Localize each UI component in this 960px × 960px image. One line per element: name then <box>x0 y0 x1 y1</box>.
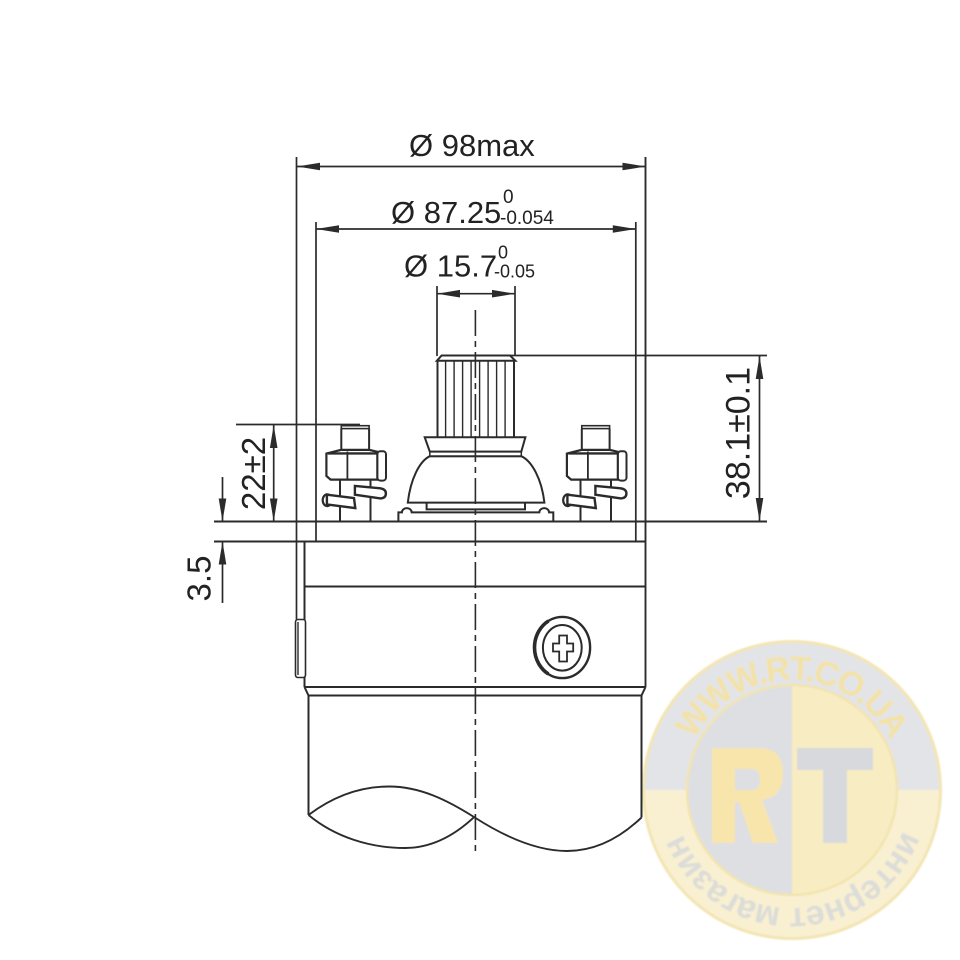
svg-text:Ø 15.7: Ø 15.7 <box>404 249 497 284</box>
svg-text:38.1±0.1: 38.1±0.1 <box>720 367 758 499</box>
svg-text:3.5: 3.5 <box>181 556 218 602</box>
svg-text:Ø 87.25: Ø 87.25 <box>391 195 501 230</box>
svg-text:-0.05: -0.05 <box>494 262 535 282</box>
svg-text:22±2: 22±2 <box>235 437 272 510</box>
svg-text:0: 0 <box>503 187 514 208</box>
svg-text:0: 0 <box>498 243 508 263</box>
svg-text:-0.054: -0.054 <box>500 208 554 229</box>
svg-text:Ø 98max: Ø 98max <box>409 128 535 163</box>
